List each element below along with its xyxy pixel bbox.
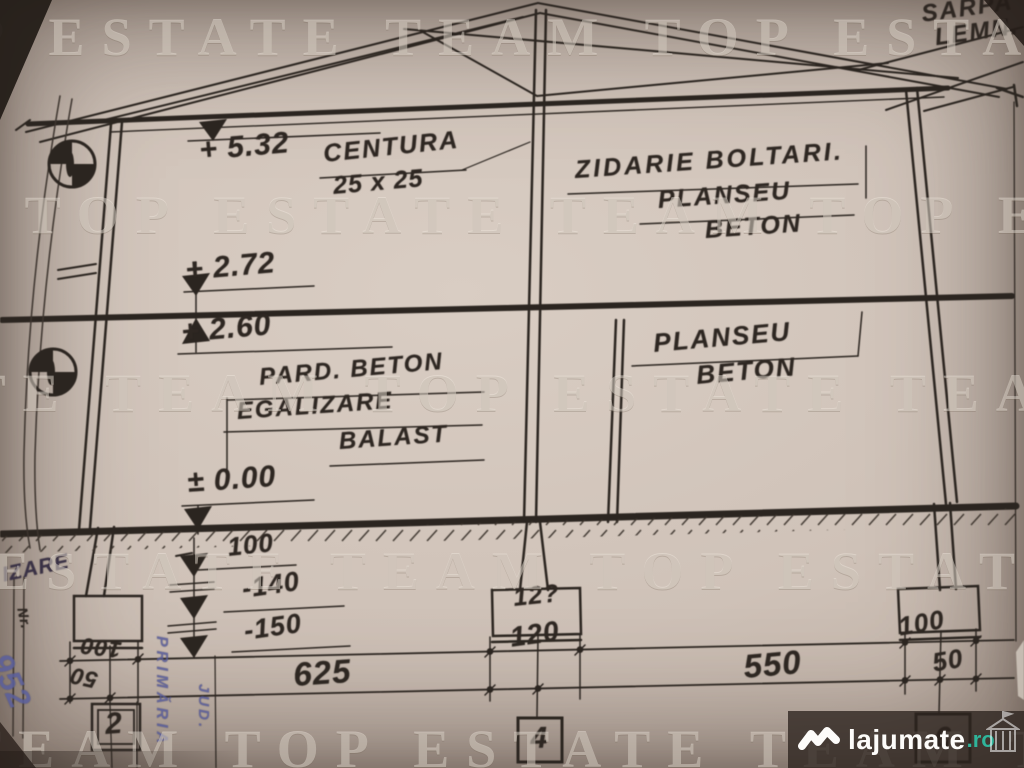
dim-footing-left-offset: 50: [67, 661, 100, 694]
footing-center-label: 12?: [512, 579, 561, 613]
scanned-blueprint-photo: SARPA LEMN. + 5.32 CENTURA 25 x 25 ZIDAR…: [0, 0, 1024, 768]
elevation-ground: ± 0.00: [186, 460, 277, 500]
datum-circle-icon: [30, 349, 76, 395]
dim-span-left: 625: [292, 652, 353, 694]
axis-label-center: 4: [530, 721, 549, 756]
section-drawing: SARPA LEMN. + 5.32 CENTURA 25 x 25 ZIDAR…: [0, 0, 1024, 768]
dim-opening-center: 120: [508, 615, 562, 654]
stamp-jud: JUD.: [195, 684, 212, 730]
level-minus100: 100: [226, 527, 275, 563]
axis-label-left: 2: [104, 707, 124, 742]
dim-footing-left-width: 100: [79, 632, 123, 664]
house-icon: [986, 709, 1020, 755]
site-logo-band: lajumate .ro: [788, 711, 1024, 768]
roof-truss-lines: [16, 3, 1023, 142]
ceiling-slab-line: [28, 88, 948, 124]
dim-footing-right-offset: 50: [930, 643, 966, 679]
logo-brand-text: lajumate: [848, 724, 966, 756]
floor-slab-line: [2, 296, 1012, 320]
page-edge-lines: [13, 96, 72, 738]
lajumate-logo-icon: [798, 724, 842, 756]
stamp-primaria: PRIMĂRIA: [152, 636, 170, 747]
datum-circle-icon: [49, 141, 95, 187]
dim-span-right: 550: [742, 643, 803, 686]
